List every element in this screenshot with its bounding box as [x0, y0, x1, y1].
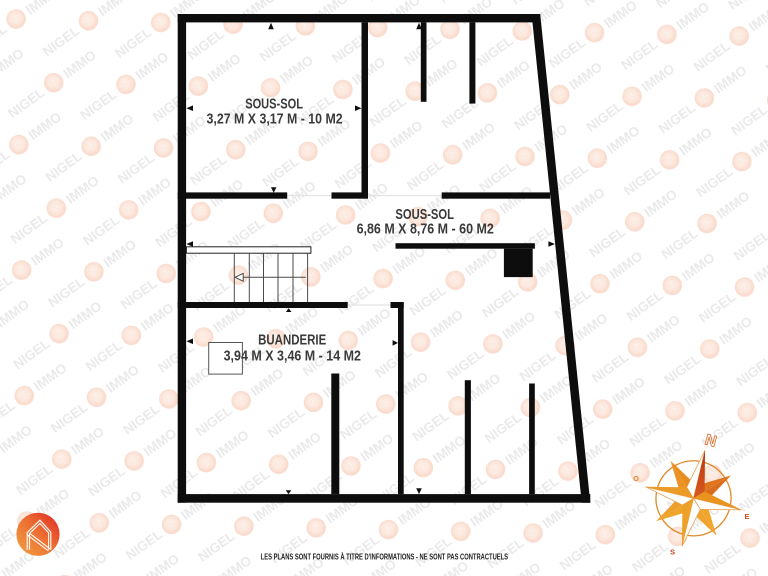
svg-text:BUANDERIE: BUANDERIE — [258, 333, 326, 349]
svg-text:3,27 M X 3,17 M - 10 M2: 3,27 M X 3,17 M - 10 M2 — [207, 112, 343, 128]
svg-text:SOUS-SOL: SOUS-SOL — [395, 207, 454, 223]
svg-text:E: E — [744, 512, 749, 521]
svg-text:SOUS-SOL: SOUS-SOL — [245, 97, 303, 113]
svg-text:3,94 M X 3,46 M - 14 M2: 3,94 M X 3,46 M - 14 M2 — [224, 349, 361, 365]
svg-text:6,86 M X 8,76 M - 60 M2: 6,86 M X 8,76 M - 60 M2 — [357, 222, 494, 238]
svg-text:LES PLANS SONT FOURNIS À TITRE: LES PLANS SONT FOURNIS À TITRE D'INFORMA… — [261, 551, 509, 561]
svg-text:S: S — [670, 548, 675, 557]
svg-text:O: O — [633, 474, 639, 483]
